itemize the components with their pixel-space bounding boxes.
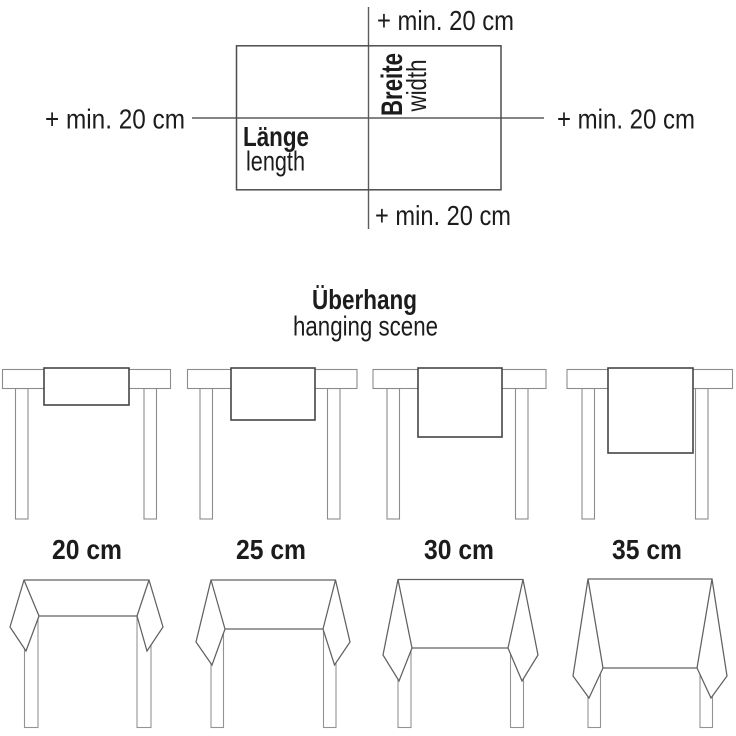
svg-text:hanging scene: hanging scene [293, 311, 438, 342]
svg-text:+ min. 20 cm: + min. 20 cm [557, 104, 695, 135]
svg-text:length: length [246, 146, 305, 177]
svg-text:+ min. 20 cm: + min. 20 cm [45, 104, 185, 135]
svg-text:35 cm: 35 cm [612, 534, 682, 565]
svg-text:25 cm: 25 cm [236, 534, 306, 565]
svg-text:30 cm: 30 cm [424, 534, 494, 565]
svg-text:+ min. 20 cm: + min. 20 cm [377, 5, 514, 36]
svg-text:20 cm: 20 cm [52, 534, 122, 565]
svg-text:width: width [401, 60, 432, 113]
svg-text:+ min. 20 cm: + min. 20 cm [375, 200, 511, 231]
